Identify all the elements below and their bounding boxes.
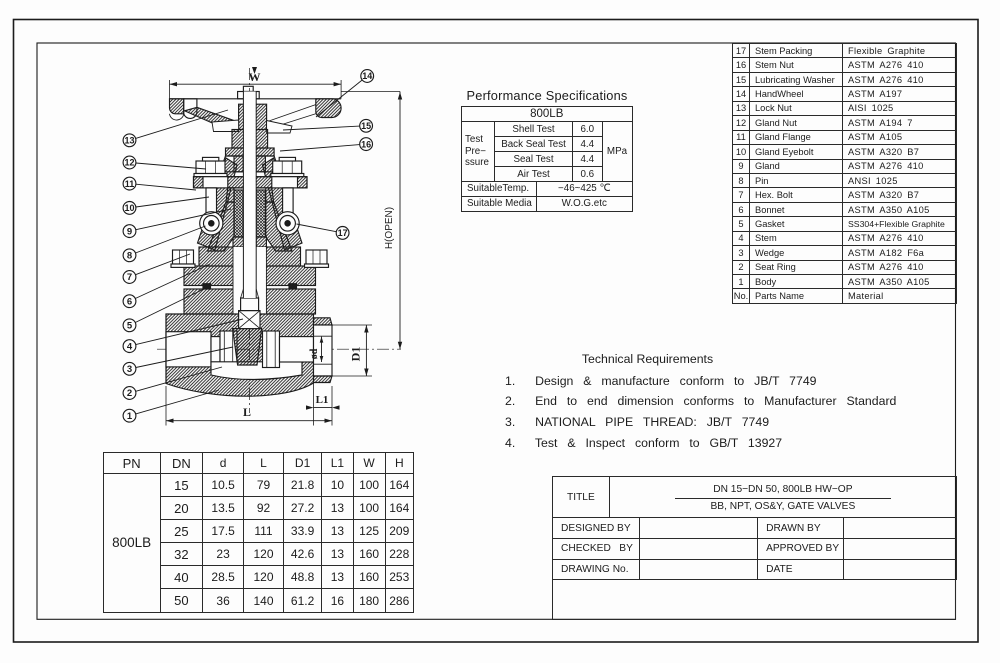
svg-text:3: 3 [127,364,132,375]
svg-text:8: 8 [127,251,132,262]
svg-text:15: 15 [361,121,371,131]
svg-text:L: L [243,405,251,419]
svg-text:13: 13 [124,136,134,146]
svg-text:17: 17 [338,228,348,238]
svg-text:16: 16 [361,139,371,149]
svg-text:10: 10 [124,203,134,213]
svg-text:ød: ød [309,348,320,359]
svg-text:H(OPEN): H(OPEN) [384,207,395,249]
svg-text:9: 9 [127,226,132,237]
svg-text:5: 5 [127,321,133,332]
svg-text:14: 14 [362,71,372,81]
svg-text:2: 2 [127,388,132,399]
svg-text:7: 7 [127,272,132,283]
svg-text:1: 1 [127,411,133,422]
svg-text:4: 4 [127,341,133,352]
svg-text:L1: L1 [316,394,329,406]
svg-text:D1: D1 [349,347,363,362]
svg-text:11: 11 [125,179,135,189]
svg-text:12: 12 [124,158,134,168]
svg-text:6: 6 [127,296,132,307]
